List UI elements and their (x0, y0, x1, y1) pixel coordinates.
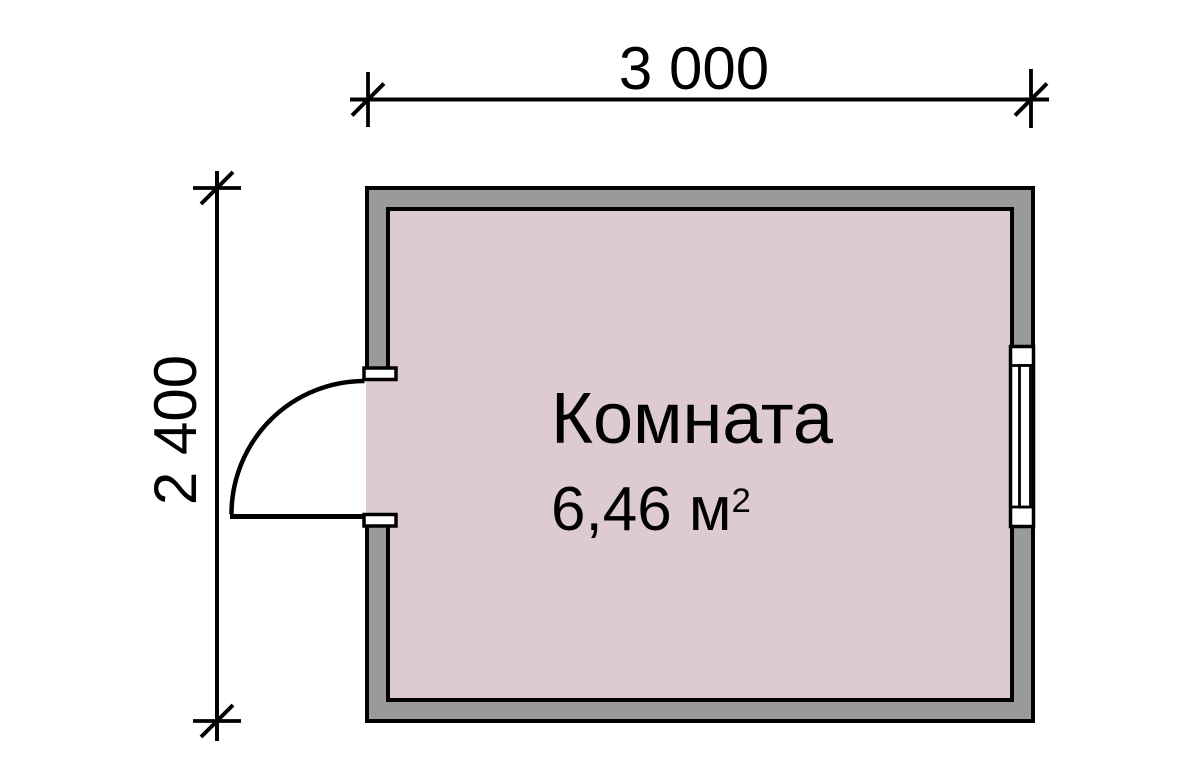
floor-plan-canvas: 3 000 2 400 Комната 6,46 м2 (0, 0, 1200, 772)
room-area-label: 6,46 м2 (551, 479, 751, 541)
door-opening-outside (357, 380, 366, 514)
dimension-width-label: 3 000 (544, 39, 844, 99)
door-jamb-bottom (364, 515, 396, 527)
door-jamb-top (364, 368, 396, 380)
door-swing-arc-icon (232, 381, 365, 514)
room-area-value: 6,46 м (551, 475, 732, 544)
door-opening (366, 380, 390, 514)
window-sash (1020, 366, 1031, 508)
room-name-label: Комната (551, 383, 833, 455)
dimension-height-label: 2 400 (146, 280, 208, 580)
room-area-exponent: 2 (732, 482, 751, 520)
